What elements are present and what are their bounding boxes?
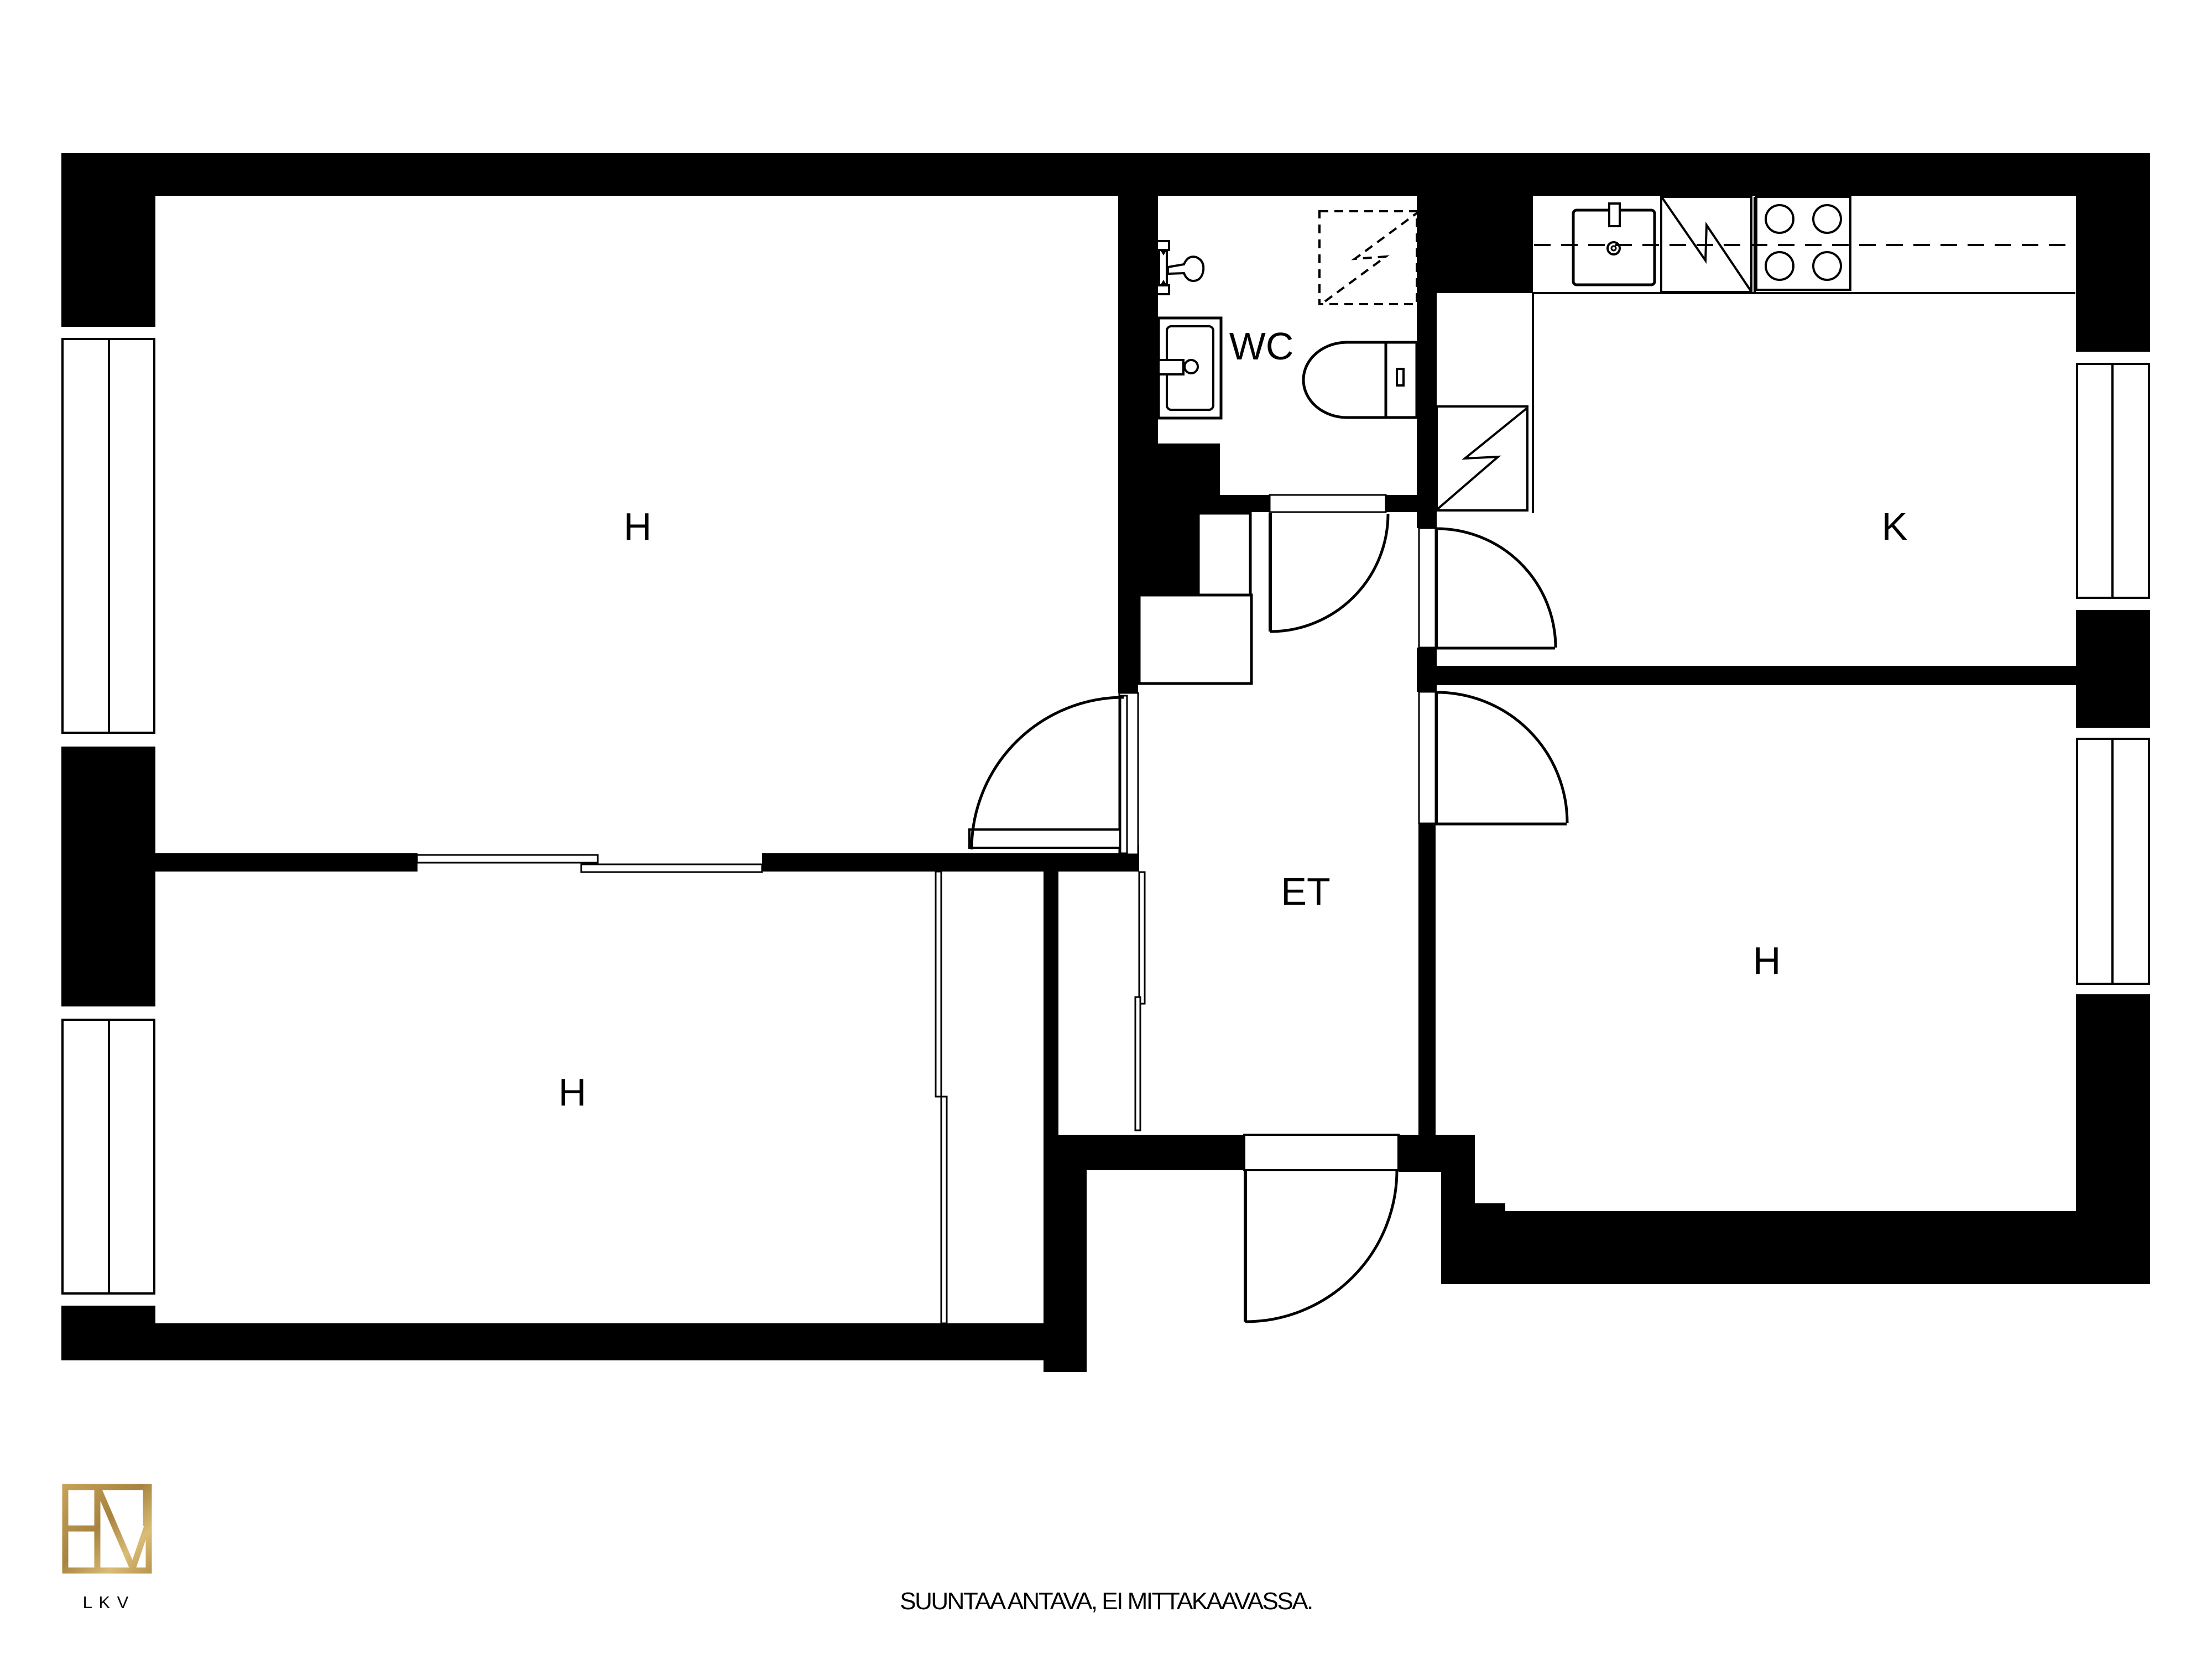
svg-text:SUUNTAA ANTAVA, EI MITTAKAAVAS: SUUNTAA ANTAVA, EI MITTAKAAVASSA. (900, 1588, 1312, 1615)
svg-text:H: H (559, 1071, 587, 1114)
svg-text:L K V: L K V (83, 1593, 130, 1612)
svg-text:H: H (624, 505, 652, 548)
svg-text:WC: WC (1229, 325, 1294, 368)
svg-text:K: K (1882, 505, 1908, 548)
svg-text:H: H (1753, 939, 1781, 982)
svg-text:ET: ET (1281, 870, 1330, 913)
